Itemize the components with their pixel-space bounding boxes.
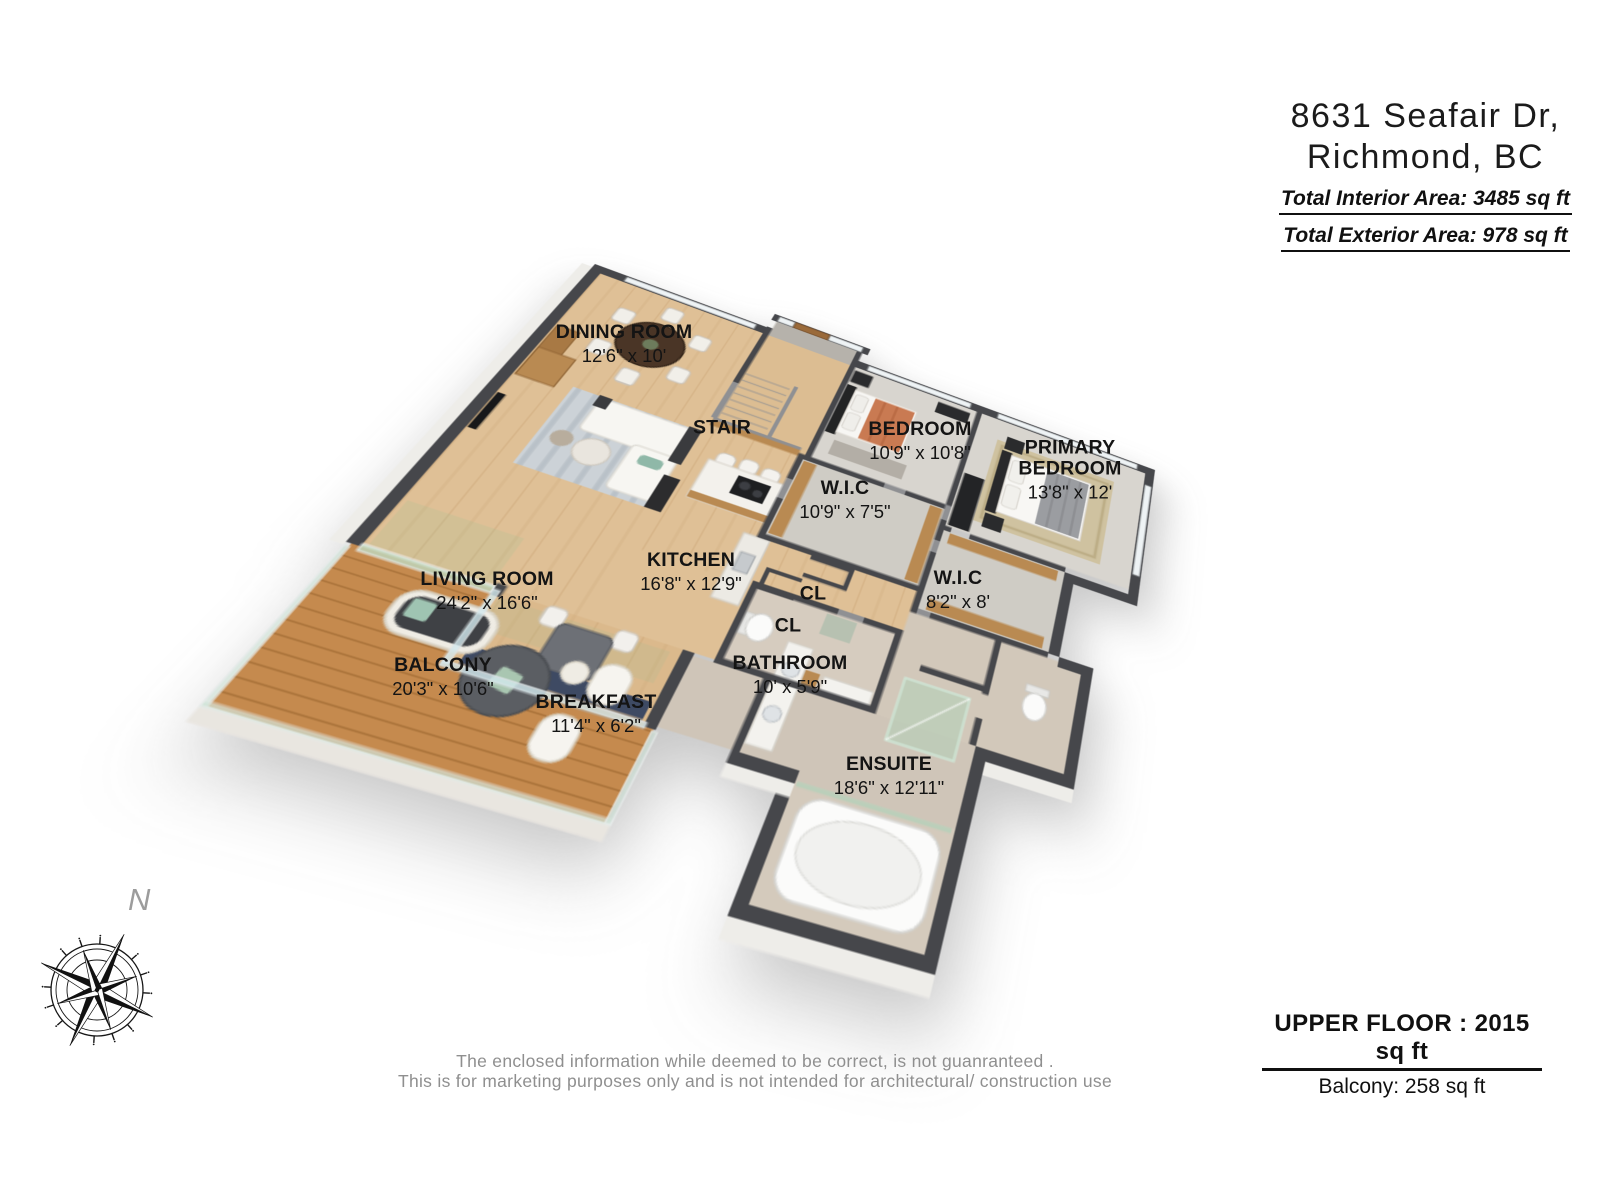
room-label-balcony: BALCONY20'3" x 10'6" — [392, 655, 493, 699]
total-exterior-area: Total Exterior Area: 978 sq ft — [1281, 224, 1569, 252]
disclaimer-line-1: The enclosed information while deemed to… — [180, 1052, 1330, 1072]
room-label-closet-2: CL — [775, 616, 801, 637]
room-label-dining: DINING ROOM12'6" x 10' — [556, 322, 693, 366]
room-label-wic-primary: W.I.C8'2" x 8' — [926, 568, 990, 612]
address-line-2: Richmond, BC — [1279, 137, 1572, 178]
address-line-1: 8631 Seafair Dr, — [1279, 96, 1572, 137]
north-label: N — [128, 882, 150, 918]
room-label-bathroom: BATHROOM10' x 5'9" — [733, 653, 848, 697]
room-label-bedroom: BEDROOM10'9" x 10'8" — [868, 419, 971, 463]
disclaimer: The enclosed information while deemed to… — [180, 1052, 1330, 1091]
total-interior-area: Total Interior Area: 3485 sq ft — [1279, 187, 1572, 215]
header-block: 8631 Seafair Dr, Richmond, BC Total Inte… — [1279, 96, 1572, 252]
compass-rose-icon — [22, 880, 222, 1100]
room-label-primary-bedroom: PRIMARY BEDROOM13'8" x 12' — [995, 438, 1145, 503]
room-label-ensuite: ENSUITE18'6" x 12'11" — [834, 754, 944, 798]
room-label-breakfast: BREAKFAST11'4" x 6'2" — [536, 692, 657, 736]
room-label-stair: STAIR — [693, 418, 751, 439]
room-label-living-room: LIVING ROOM24'2" x 16'6" — [420, 569, 553, 613]
room-label-kitchen: KITCHEN16'8" x 12'9" — [640, 550, 741, 594]
room-label-wic-bedroom: W.I.C10'9" x 7'5" — [799, 478, 890, 522]
room-label-closet-1: CL — [800, 584, 826, 605]
floor-plan-page: DINING ROOM12'6" x 10'STAIRBEDROOM10'9" … — [0, 0, 1600, 1200]
disclaimer-line-2: This is for marketing purposes only and … — [180, 1072, 1330, 1092]
